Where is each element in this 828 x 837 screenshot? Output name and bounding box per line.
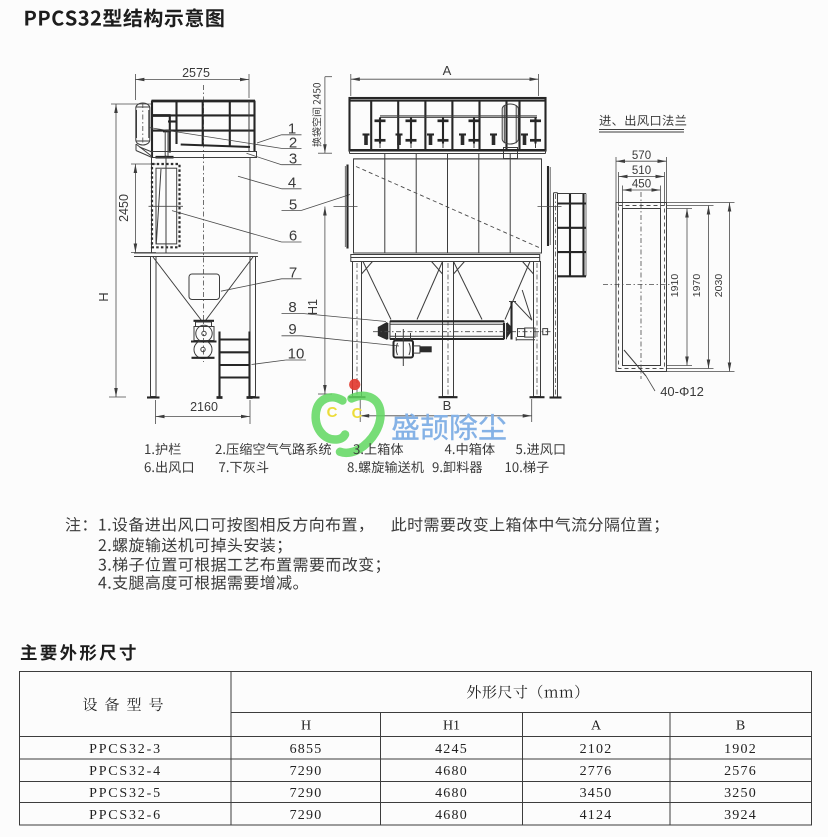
- svg-text:6855: 6855: [290, 742, 323, 757]
- svg-text:2030: 2030: [713, 274, 725, 298]
- svg-text:510: 510: [632, 165, 651, 177]
- svg-text:B: B: [443, 398, 452, 413]
- svg-text:4245: 4245: [435, 742, 468, 757]
- svg-text:H: H: [301, 719, 311, 734]
- svg-text:B: B: [736, 719, 745, 734]
- svg-text:40-Φ12: 40-Φ12: [660, 384, 704, 399]
- svg-text:H1: H1: [443, 719, 460, 734]
- svg-text:C: C: [352, 405, 363, 422]
- svg-text:1910: 1910: [669, 274, 681, 298]
- svg-text:3250: 3250: [724, 786, 757, 801]
- svg-text:7290: 7290: [290, 764, 323, 779]
- svg-text:2450: 2450: [117, 194, 131, 222]
- svg-text:450: 450: [632, 179, 651, 191]
- svg-text:4680: 4680: [435, 786, 468, 801]
- svg-text:H1: H1: [306, 299, 320, 315]
- svg-text:A: A: [443, 63, 452, 78]
- svg-text:570: 570: [632, 150, 651, 162]
- svg-text:PPCS32-5: PPCS32-5: [89, 786, 162, 801]
- svg-text:PPCS32-3: PPCS32-3: [89, 742, 162, 757]
- svg-text:PPCS32-4: PPCS32-4: [89, 764, 162, 779]
- svg-text:2102: 2102: [580, 742, 613, 757]
- svg-text:C: C: [327, 404, 338, 421]
- svg-text:2160: 2160: [190, 400, 218, 414]
- svg-text:3450: 3450: [580, 786, 613, 801]
- svg-text:1970: 1970: [691, 274, 703, 298]
- svg-text:2776: 2776: [580, 764, 613, 779]
- svg-text:1902: 1902: [724, 742, 757, 757]
- svg-text:PPCS32-6: PPCS32-6: [89, 808, 162, 823]
- svg-text:A: A: [591, 719, 602, 734]
- svg-text:4124: 4124: [580, 808, 613, 823]
- svg-text:4680: 4680: [435, 808, 468, 823]
- svg-text:7290: 7290: [290, 786, 323, 801]
- svg-text:5: 5: [289, 196, 297, 213]
- svg-text:3924: 3924: [724, 808, 757, 823]
- svg-text:2576: 2576: [724, 764, 757, 779]
- svg-text:7290: 7290: [290, 808, 323, 823]
- svg-text:4680: 4680: [435, 764, 468, 779]
- svg-text:2575: 2575: [182, 66, 210, 80]
- svg-text:H: H: [96, 292, 111, 301]
